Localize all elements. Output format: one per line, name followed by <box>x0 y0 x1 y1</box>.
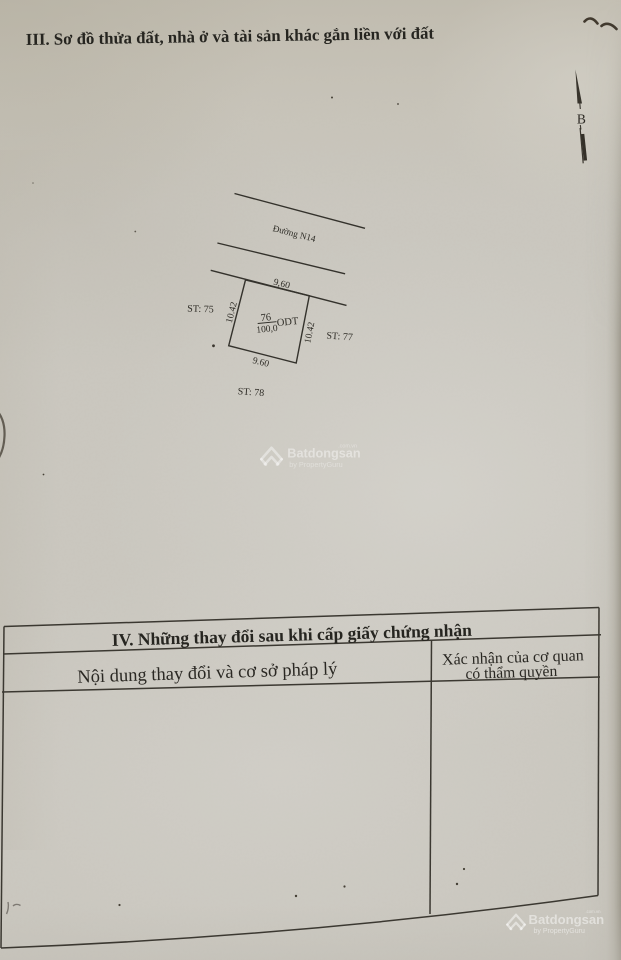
svg-text:ST: 75: ST: 75 <box>187 304 214 316</box>
svg-text:by PropertyGuru: by PropertyGuru <box>534 928 585 935</box>
svg-text:by PropertyGuru: by PropertyGuru <box>289 460 343 469</box>
svg-text:.com.vn: .com.vn <box>338 444 357 450</box>
svg-text:.com.vn: .com.vn <box>585 909 601 914</box>
svg-text:100,0: 100,0 <box>256 324 278 336</box>
svg-text:có thẩm quyền: có thẩm quyền <box>465 663 558 683</box>
svg-text:ST: 77: ST: 77 <box>326 330 353 343</box>
svg-text:ODT: ODT <box>276 316 299 329</box>
svg-text:ST: 78: ST: 78 <box>237 386 264 399</box>
svg-text:B: B <box>577 112 586 127</box>
svg-text:Batdongsan: Batdongsan <box>529 912 605 927</box>
